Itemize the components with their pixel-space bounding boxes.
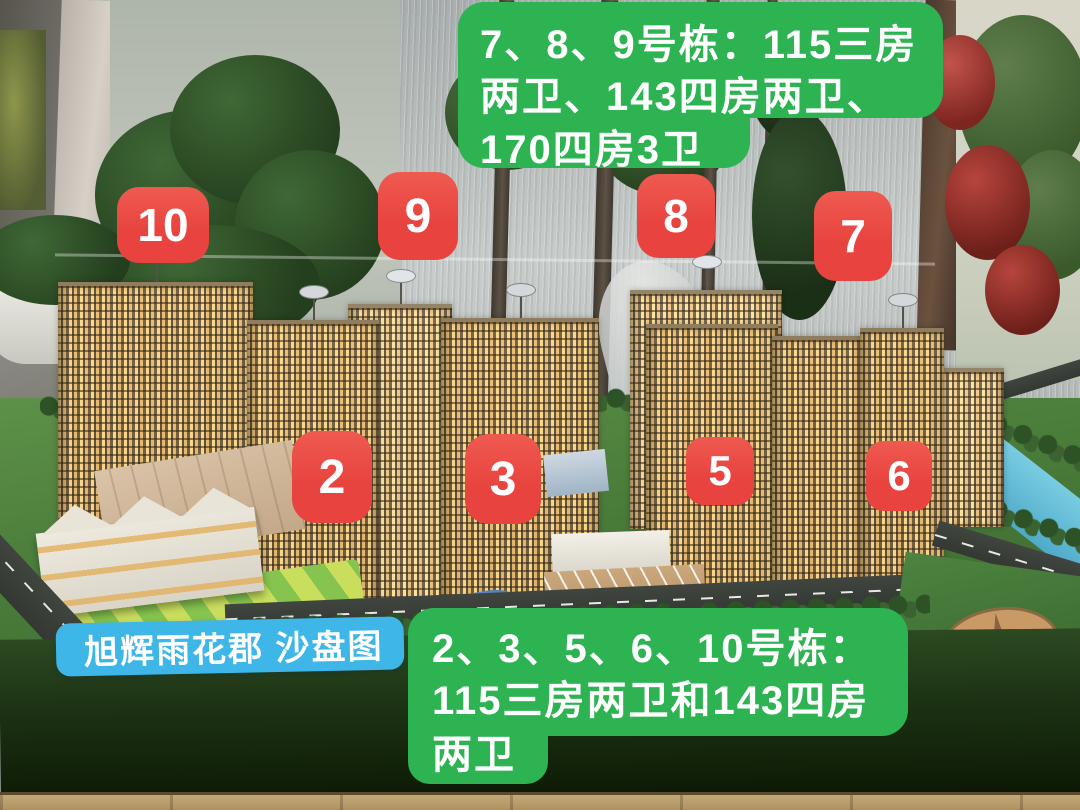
red-flower-plant xyxy=(985,245,1060,335)
building-badge-2: 2 xyxy=(292,431,372,523)
tower-building-far-right xyxy=(938,368,1004,527)
building-badge-10: 10 xyxy=(117,187,209,263)
clubhouse-roof xyxy=(543,449,609,497)
building-badge-8: 8 xyxy=(637,174,715,258)
unit-info-bottom-line3: 两卫 xyxy=(432,722,516,780)
rooftop-sign xyxy=(313,294,315,320)
sales-gallery-model-photo: 7、8、9号栋：115三房 两卫、143四房两卫、 170四房3卫 2、3、5、… xyxy=(0,0,1080,810)
unit-info-bottom-line1: 2、3、5、6、10号栋： xyxy=(432,616,871,674)
left-wall-art xyxy=(0,30,46,210)
rooftop-sign xyxy=(400,278,402,304)
building-badge-3: 3 xyxy=(465,434,541,524)
building-badge-6: 6 xyxy=(866,441,932,511)
unit-info-bottom-line2: 115三房两卫和143四房 xyxy=(432,668,869,726)
rooftop-sign xyxy=(902,302,904,328)
unit-info-top-line2: 两卫、143四房两卫、 xyxy=(480,64,889,122)
unit-info-top-line3: 170四房3卫 xyxy=(480,117,703,175)
rooftop-sign xyxy=(520,292,522,318)
building-badge-9: 9 xyxy=(378,172,458,260)
unit-info-top-line1: 7、8、9号栋：115三房 xyxy=(480,12,917,70)
red-flower-plant xyxy=(945,145,1030,260)
building-badge-7: 7 xyxy=(814,191,892,281)
wooden-floor xyxy=(0,792,1080,810)
project-title-label: 旭辉雨花郡 沙盘图 xyxy=(55,616,404,676)
building-badge-5: 5 xyxy=(686,437,754,505)
project-title-text: 旭辉雨花郡 沙盘图 xyxy=(56,619,384,675)
rooftop-sign xyxy=(706,264,708,290)
